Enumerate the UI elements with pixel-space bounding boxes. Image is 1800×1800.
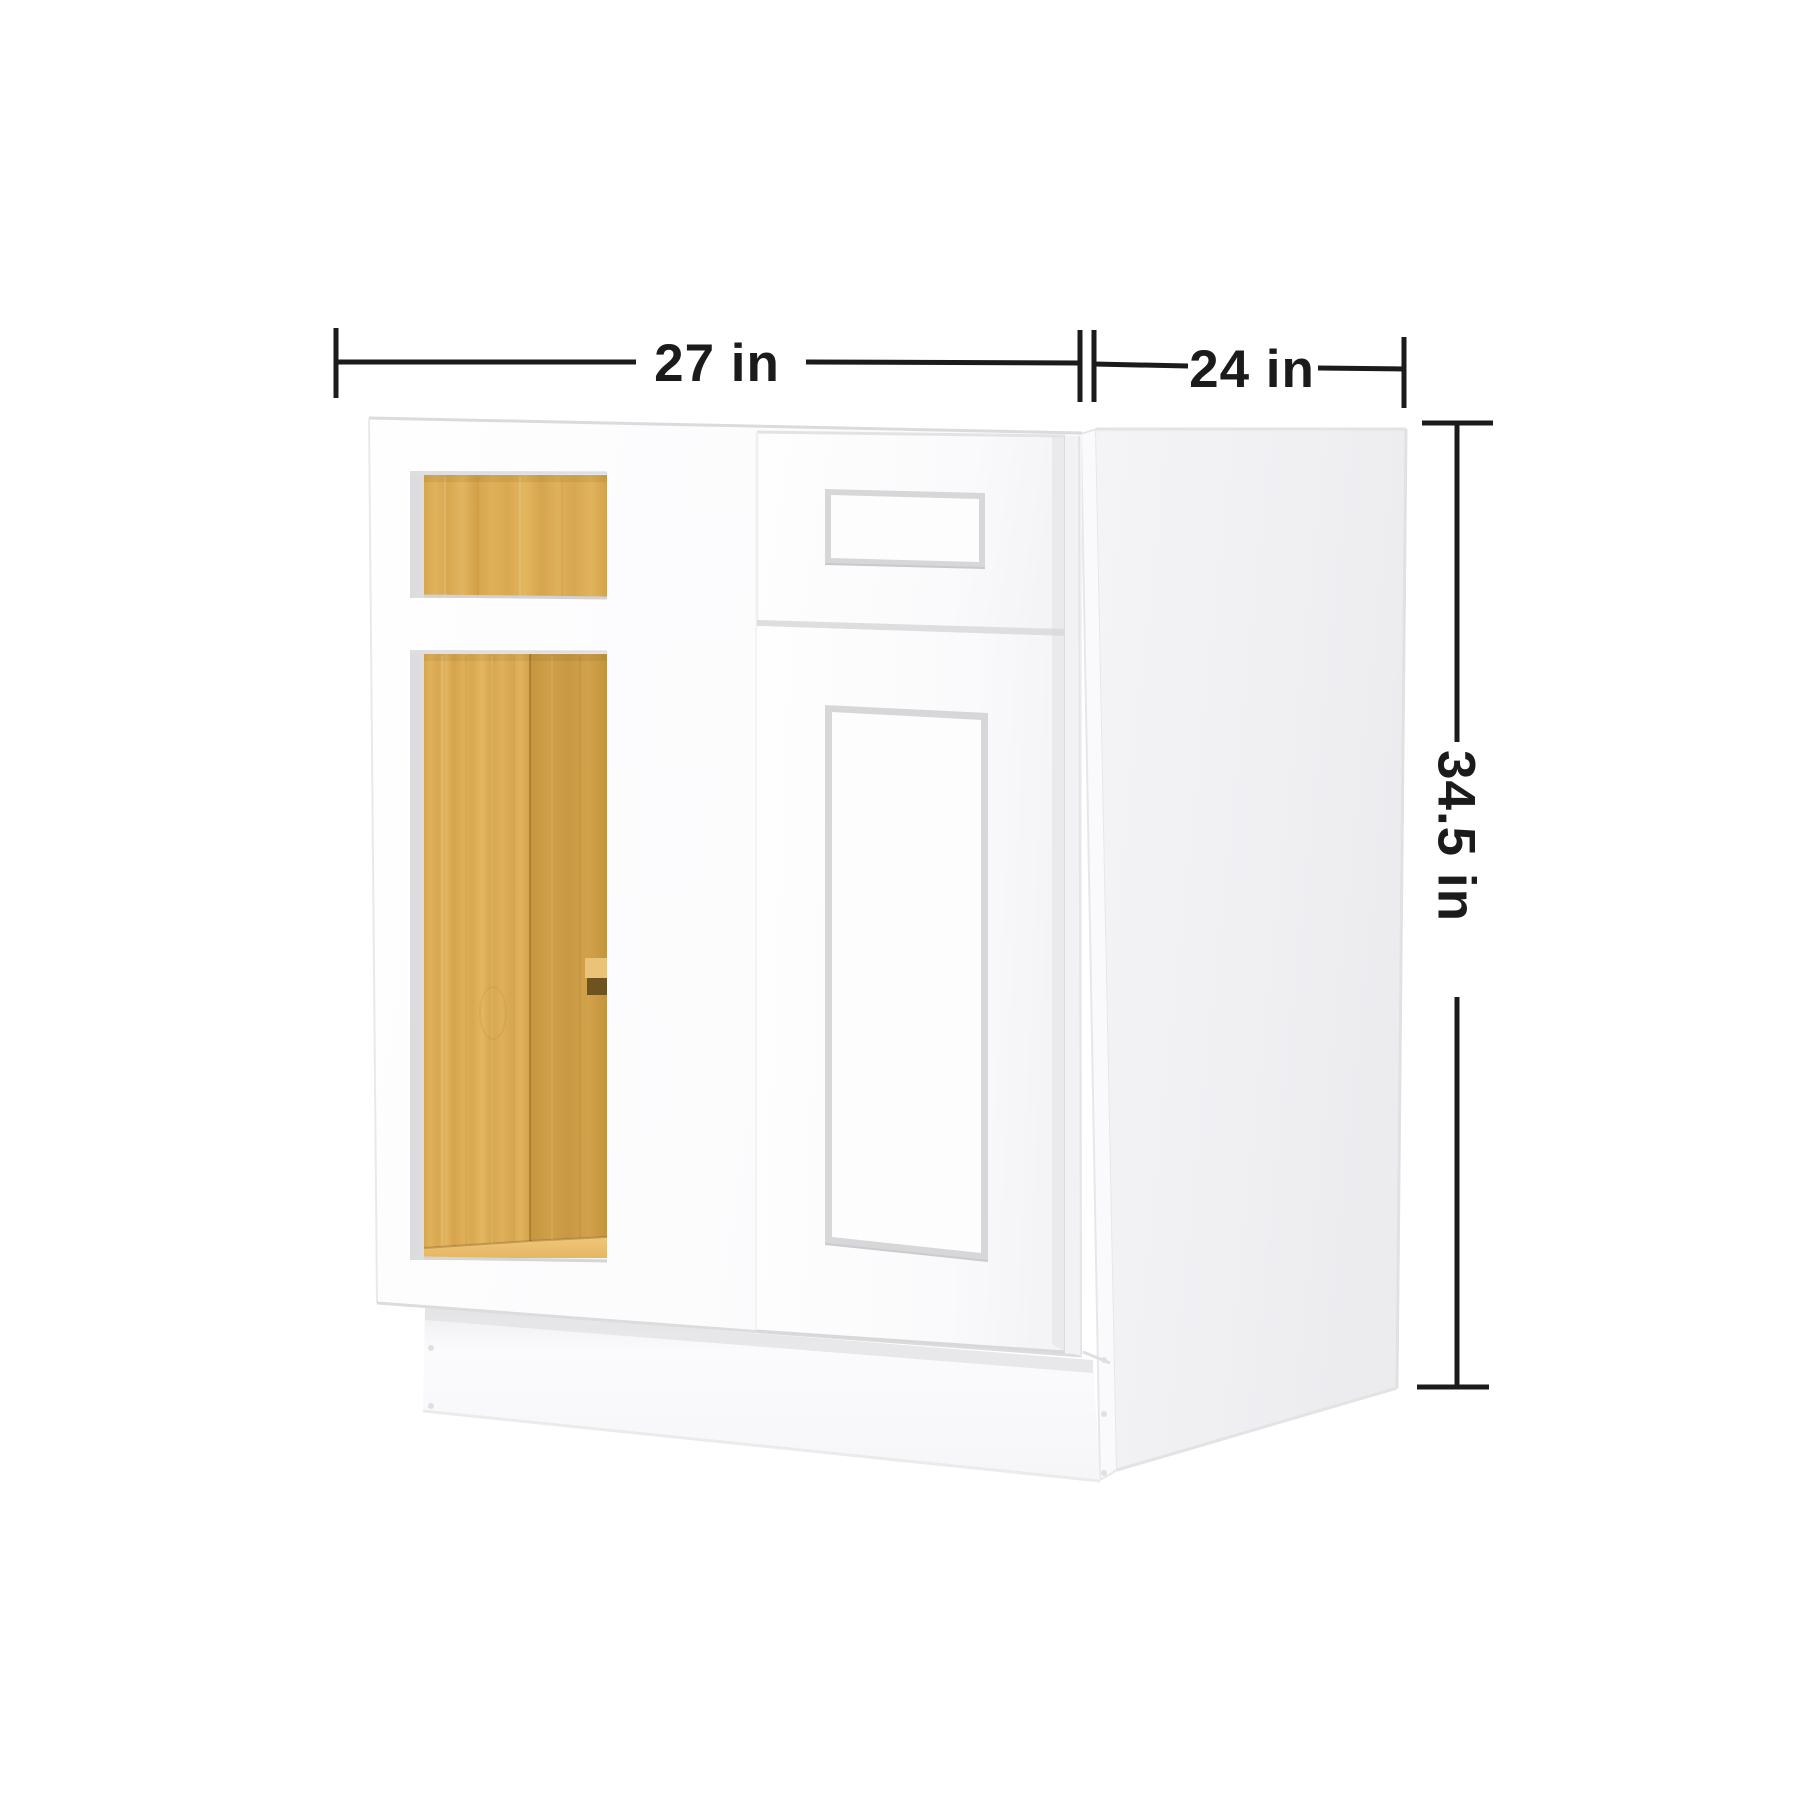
opening-top-wood-panel [424,475,607,597]
door-recess-panel [832,712,981,1253]
product-diagram-stage: 27 in 24 in 34.5 in [0,0,1800,1800]
depth-dimension-label: 24 in [1189,340,1315,399]
interior-bracket-shadow [587,978,607,995]
side-panel [1083,429,1406,1470]
blind-opening-bottom [410,650,607,1261]
blind-opening-top [410,471,607,598]
height-dimension-label: 34.5 in [1427,750,1486,922]
drawer-recess-panel [831,495,979,562]
cabinet [369,418,1406,1481]
door-right-edge [1052,436,1065,1352]
cabinet-dimension-diagram: 27 in 24 in 34.5 in [0,0,1800,1800]
width-dimension-label: 27 in [654,334,780,393]
interior-bracket [585,958,607,978]
interior-side-panel [530,654,607,1241]
